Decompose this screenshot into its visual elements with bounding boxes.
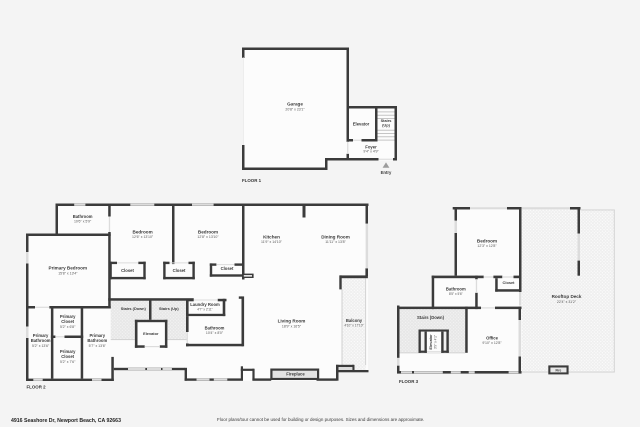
svg-text:12'3" x 12'8": 12'3" x 12'8"	[477, 244, 497, 248]
svg-text:11'11" x 13'8": 11'11" x 13'8"	[325, 240, 346, 244]
svg-text:5'7" x 13'6": 5'7" x 13'6"	[89, 344, 107, 348]
svg-text:Office: Office	[486, 335, 499, 340]
svg-text:Bathroom: Bathroom	[205, 325, 225, 330]
svg-text:FLOOR 2: FLOOR 2	[27, 384, 47, 389]
svg-text:Closet: Closet	[61, 354, 74, 359]
svg-text:Closet: Closet	[503, 280, 516, 285]
svg-text:20'8" x 23'1": 20'8" x 23'1"	[285, 107, 305, 111]
svg-text:Elevator: Elevator	[428, 334, 433, 350]
svg-text:22'4" x 31'2": 22'4" x 31'2"	[557, 300, 577, 304]
svg-text:9'10" x 12'8": 9'10" x 12'8"	[482, 341, 502, 345]
svg-text:Primary Bedroom: Primary Bedroom	[49, 266, 88, 271]
svg-text:Closet: Closet	[61, 319, 74, 324]
svg-text:Bathroom: Bathroom	[73, 214, 93, 219]
svg-text:Laundry Room: Laundry Room	[190, 302, 220, 307]
svg-text:5'2" x 13'6": 5'2" x 13'6"	[32, 344, 50, 348]
svg-text:Bedroom: Bedroom	[198, 229, 218, 234]
svg-text:5'2" x 6'8": 5'2" x 6'8"	[60, 325, 76, 329]
svg-text:Floor plans/tour cannot be use: Floor plans/tour cannot be used for buil…	[217, 417, 424, 422]
svg-text:Dining Room: Dining Room	[321, 234, 350, 239]
svg-text:Balcony: Balcony	[346, 318, 363, 323]
svg-text:Closet: Closet	[173, 268, 186, 273]
svg-text:Rooftop Deck: Rooftop Deck	[552, 294, 582, 299]
svg-text:9'4" x 4'9": 9'4" x 4'9"	[363, 150, 379, 154]
svg-text:Closet: Closet	[121, 268, 134, 273]
svg-text:3'9" x 4'1": 3'9" x 4'1"	[434, 335, 438, 349]
svg-text:18'9" x 16'5": 18'9" x 16'5"	[282, 325, 302, 329]
svg-text:Living Room: Living Room	[278, 319, 306, 324]
svg-text:11'9" x 14'10": 11'9" x 14'10"	[261, 240, 283, 244]
svg-text:FLOOR 1: FLOOR 1	[242, 178, 262, 183]
svg-text:Stairs (Down): Stairs (Down)	[417, 315, 445, 320]
svg-text:8'5" x 5'6": 8'5" x 5'6"	[449, 292, 463, 296]
svg-text:Stairs (Up): Stairs (Up)	[159, 306, 179, 311]
svg-text:Elevator: Elevator	[353, 121, 370, 126]
svg-text:5'2" x 7'6": 5'2" x 7'6"	[60, 360, 76, 364]
svg-text:Stairs (Down): Stairs (Down)	[121, 306, 147, 311]
svg-text:Entry: Entry	[381, 170, 392, 175]
svg-text:Kitchen: Kitchen	[263, 234, 280, 239]
svg-text:Bedroom: Bedroom	[133, 229, 153, 234]
svg-text:Fire: Fire	[555, 368, 561, 372]
svg-text:12'8" x 13'10": 12'8" x 13'10"	[197, 235, 219, 239]
svg-text:Foyer: Foyer	[365, 144, 377, 149]
svg-text:10'6" x 5'9": 10'6" x 5'9"	[74, 220, 92, 224]
svg-text:4916 Seashore Dr, Newport Beac: 4916 Seashore Dr, Newport Beach, CA 9266…	[11, 418, 121, 424]
svg-text:12'6" x 13'10": 12'6" x 13'10"	[132, 235, 154, 239]
svg-text:Bathroom: Bathroom	[446, 286, 466, 291]
svg-text:4'7" x 2'11": 4'7" x 2'11"	[197, 307, 212, 311]
svg-text:Bathroom: Bathroom	[31, 338, 51, 343]
svg-text:10'4" x 8'0": 10'4" x 8'0"	[206, 331, 224, 335]
svg-text:Garage: Garage	[287, 102, 303, 107]
svg-text:Bathroom: Bathroom	[87, 338, 107, 343]
svg-text:Closet: Closet	[221, 266, 234, 271]
svg-text:(Up): (Up)	[382, 123, 390, 128]
svg-text:Elevator: Elevator	[143, 331, 159, 336]
svg-text:Fireplace: Fireplace	[286, 371, 305, 376]
svg-text:4'10" x 17'10": 4'10" x 17'10"	[344, 323, 363, 327]
svg-text:FLOOR 3: FLOOR 3	[399, 379, 419, 384]
svg-text:15'8" x 13'4": 15'8" x 13'4"	[58, 272, 78, 276]
